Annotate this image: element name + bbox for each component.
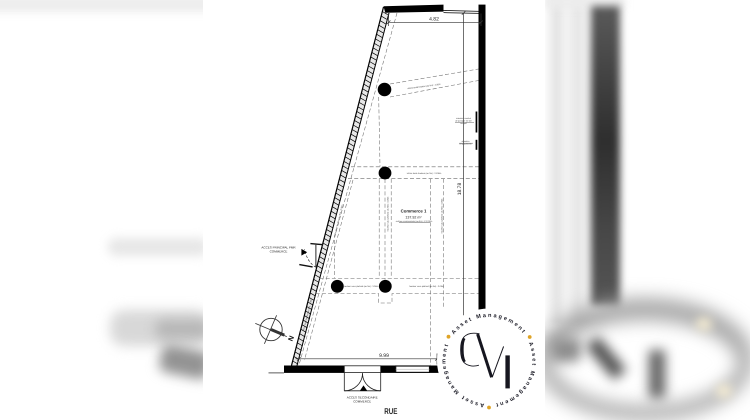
svg-text:attention conduit: attention conduit — [456, 117, 471, 120]
svg-text:vitrine toute hauteur (au fini: vitrine toute hauteur (au fini) : 13.06m — [407, 172, 442, 175]
svg-text:hauteur sous plafond (au fini): hauteur sous plafond (au fini) : 3.06m — [440, 199, 443, 234]
svg-text:hauteur sous plafond (au fini): hauteur sous plafond (au fini) : 3.06m — [386, 197, 389, 232]
svg-text:N: N — [286, 334, 294, 341]
svg-text:137.92 m²: 137.92 m² — [405, 215, 422, 219]
svg-text:4.82: 4.82 — [429, 17, 439, 23]
svg-text:18.78: 18.78 — [457, 183, 463, 196]
svg-text:COMMERCE: COMMERCE — [353, 400, 371, 404]
svg-text:hauteur sous plafond (au fini): hauteur sous plafond (au fini) : 3.06m — [344, 285, 379, 288]
svg-text:Commerce 1: Commerce 1 — [401, 209, 427, 214]
svg-text:RUE: RUE — [384, 406, 398, 416]
svg-text:vitrine toute hauteur (au fini: vitrine toute hauteur (au fini) : 4.08m — [407, 83, 441, 90]
svg-text:attention: attention — [462, 140, 470, 143]
svg-text:COMMERCE: COMMERCE — [270, 250, 288, 254]
svg-text:occupé: occupé — [460, 122, 467, 125]
svg-text:9.99: 9.99 — [379, 353, 389, 359]
svg-text:hauteur sous plafond (au fini): hauteur sous plafond (au fini) : 3.06m — [409, 285, 444, 288]
